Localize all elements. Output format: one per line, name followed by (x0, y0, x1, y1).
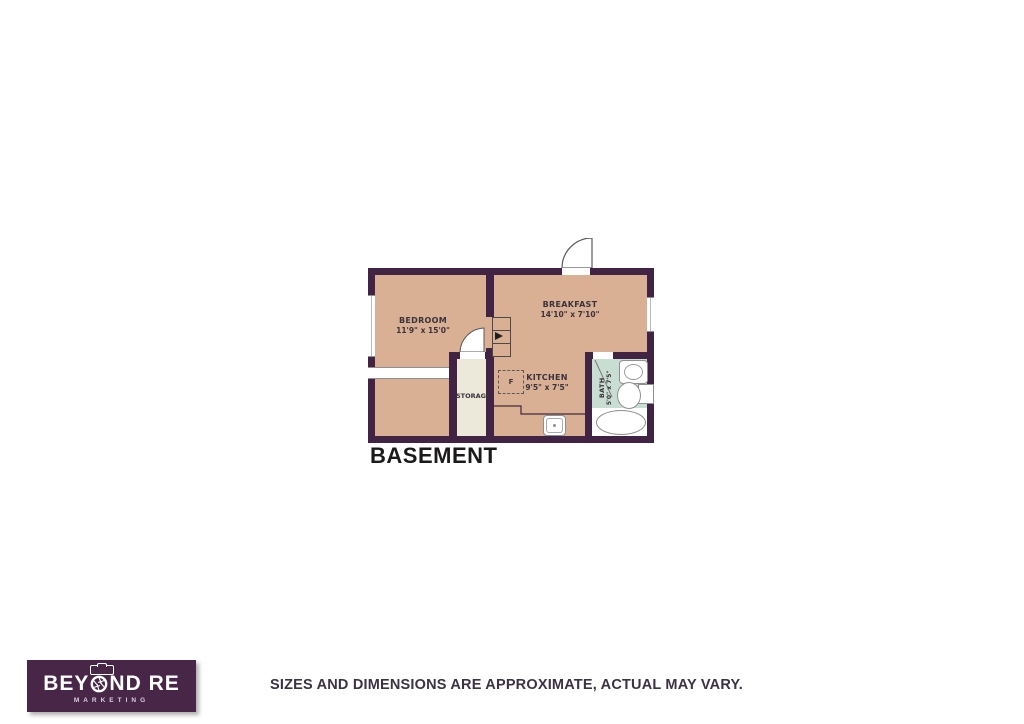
disclaimer-text: SIZES AND DIMENSIONS ARE APPROXIMATE, AC… (270, 677, 743, 693)
bathtub-icon (596, 410, 646, 435)
wall-bedroom-breakfast (486, 275, 494, 317)
logo-text-post: ND RE (109, 673, 179, 694)
logo-text-pre: BEY (43, 673, 89, 694)
room-dimensions: 9'5" x 7'5" (497, 383, 597, 392)
bathroom-sink-icon (619, 360, 648, 384)
beyond-re-marketing-logo: BEY ND RE MARKETING (27, 660, 196, 712)
window-right-icon (647, 297, 654, 332)
bath-door-gap (593, 352, 613, 359)
wall-bottom (368, 436, 654, 443)
logo-wordmark: BEY ND RE (43, 673, 180, 694)
wall-top (368, 268, 654, 275)
room-name: KITCHEN (497, 373, 597, 383)
plan-title: BASEMENT (370, 443, 497, 469)
room-dimensions: 11'9" x 15'0" (368, 326, 478, 335)
aperture-icon (90, 675, 108, 693)
kitchen-sink-icon (543, 415, 566, 436)
basement-floor-plan: F BEDROOM 11'9" x 15'0" BREAKFAST 14'10"… (368, 268, 654, 443)
room-dimensions: 5'0" x 7'5" (606, 363, 614, 413)
room-name: BEDROOM (368, 316, 478, 326)
storage-door-gap (460, 352, 485, 359)
room-name: BREAKFAST (515, 300, 625, 310)
logo-subtitle: MARKETING (74, 697, 149, 704)
camera-icon (90, 665, 114, 675)
floorplan-page: F BEDROOM 11'9" x 15'0" BREAKFAST 14'10"… (0, 0, 1024, 724)
bath-label: BATH 5'0" x 7'5" (598, 363, 614, 413)
stairs-direction-arrow-icon (495, 332, 503, 340)
storage-label: STORAGE (456, 392, 487, 400)
bedroom-label: BEDROOM 11'9" x 15'0" (368, 316, 478, 335)
wall-bath-left (585, 352, 592, 443)
room-name: BATH (598, 363, 606, 413)
room-name: STORAGE (456, 392, 487, 400)
breakfast-label: BREAKFAST 14'10" x 7'10" (515, 300, 625, 319)
bedroom-half-wall-opening (368, 367, 449, 379)
entry-door-gap (562, 268, 590, 275)
entry-door-swing-icon (562, 238, 592, 268)
kitchen-label: KITCHEN 9'5" x 7'5" (497, 373, 597, 392)
room-dimensions: 14'10" x 7'10" (515, 310, 625, 319)
stairs-icon (492, 317, 511, 357)
toilet-icon (617, 382, 641, 409)
wall-right (647, 268, 654, 443)
